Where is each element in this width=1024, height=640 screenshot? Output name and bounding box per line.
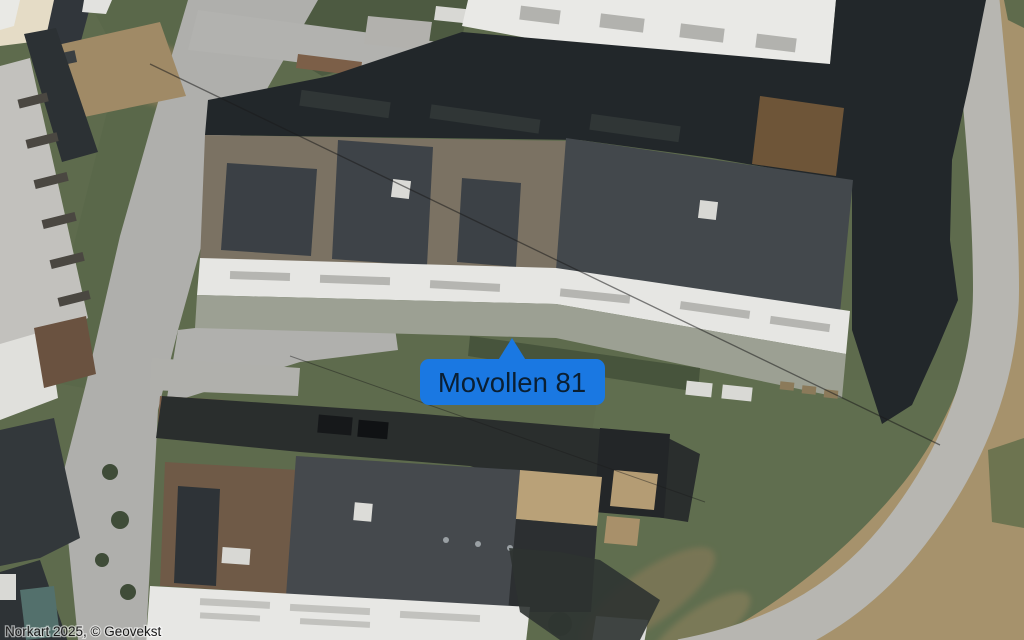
svg-text:Norkart 2025, © Geovekst: Norkart 2025, © Geovekst	[5, 624, 162, 639]
svg-text:Movollen 81: Movollen 81	[438, 367, 586, 398]
